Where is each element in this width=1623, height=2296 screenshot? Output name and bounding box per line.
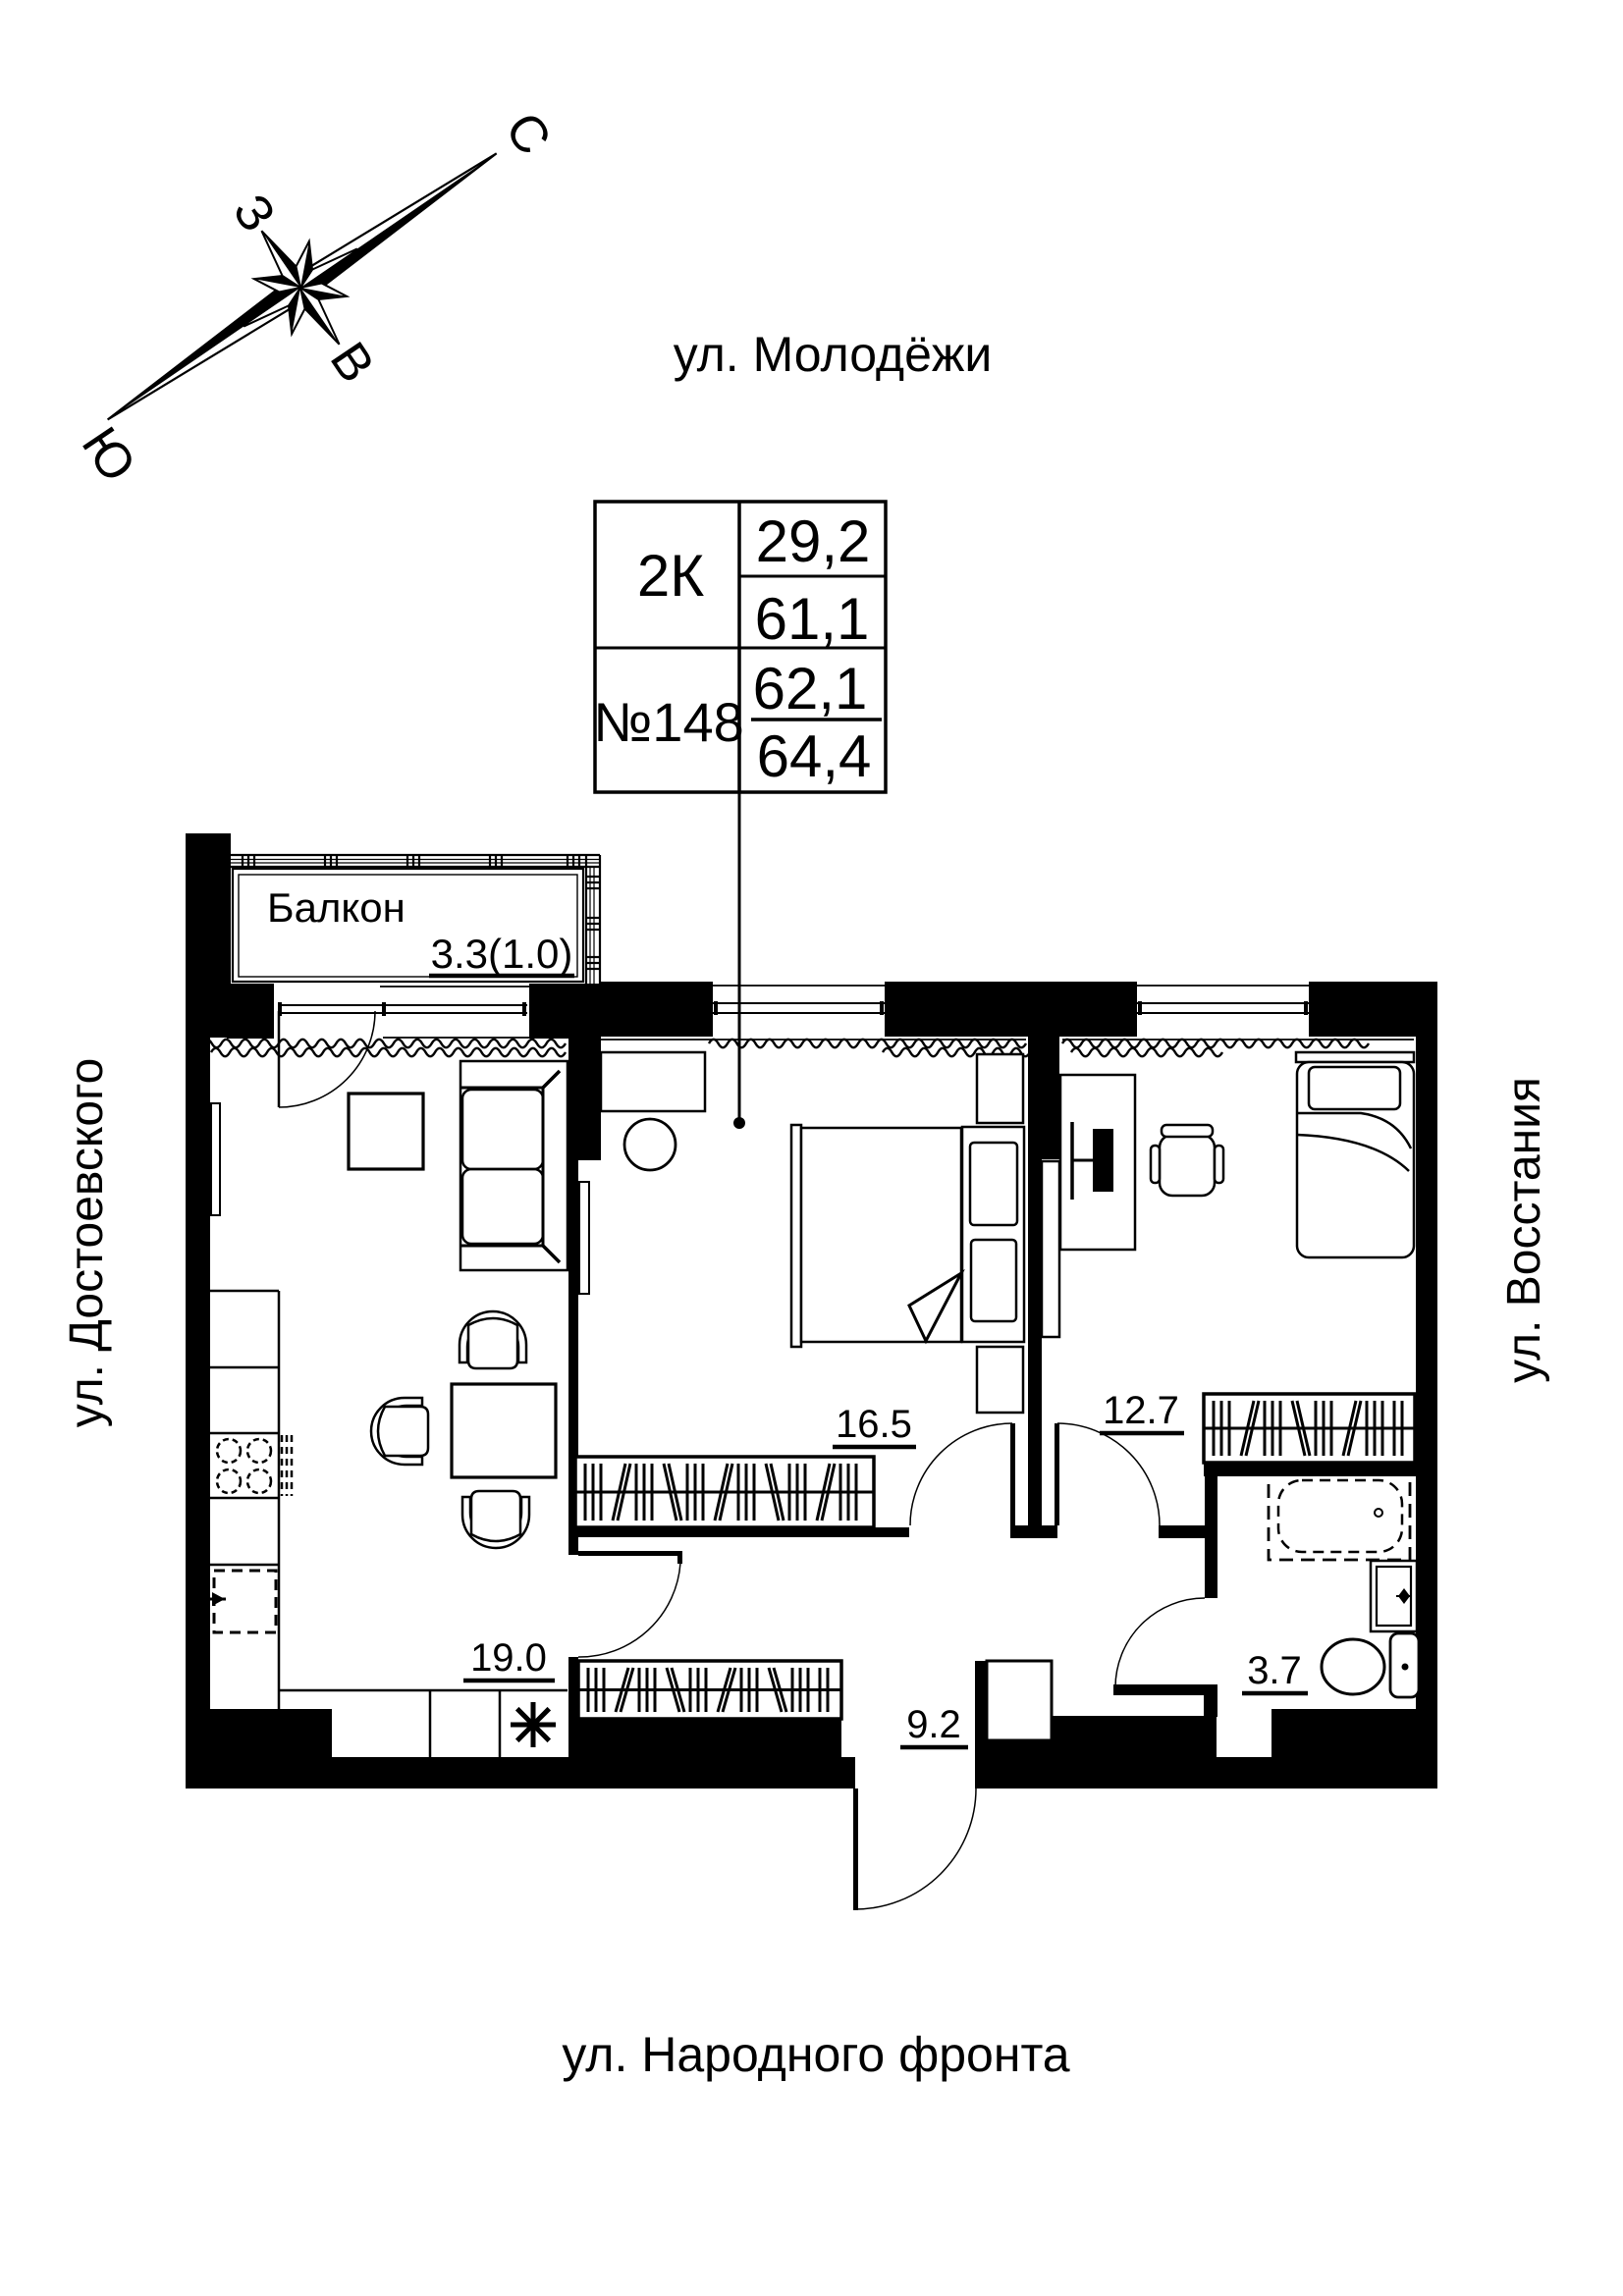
svg-text:12.7: 12.7 xyxy=(1103,1389,1179,1432)
svg-text:ул. Достоевского: ул. Достоевского xyxy=(61,1058,113,1428)
svg-text:ул. Восстания: ул. Восстания xyxy=(1498,1077,1550,1383)
svg-text:29,2: 29,2 xyxy=(756,508,871,574)
svg-text:9.2: 9.2 xyxy=(906,1703,961,1746)
svg-text:64,4: 64,4 xyxy=(757,723,872,789)
svg-text:2К: 2К xyxy=(637,543,704,609)
svg-text:3.3(1.0): 3.3(1.0) xyxy=(431,931,573,977)
svg-text:16.5: 16.5 xyxy=(836,1403,912,1446)
svg-text:3.7: 3.7 xyxy=(1247,1649,1302,1692)
svg-text:ул. Молодёжи: ул. Молодёжи xyxy=(674,327,993,382)
svg-text:61,1: 61,1 xyxy=(755,586,870,652)
svg-text:62,1: 62,1 xyxy=(753,656,868,721)
svg-text:ул. Народного фронта: ул. Народного фронта xyxy=(562,2027,1069,2082)
svg-text:Балкон: Балкон xyxy=(267,884,406,931)
svg-text:№148: №148 xyxy=(593,691,744,753)
svg-text:19.0: 19.0 xyxy=(470,1636,547,1680)
